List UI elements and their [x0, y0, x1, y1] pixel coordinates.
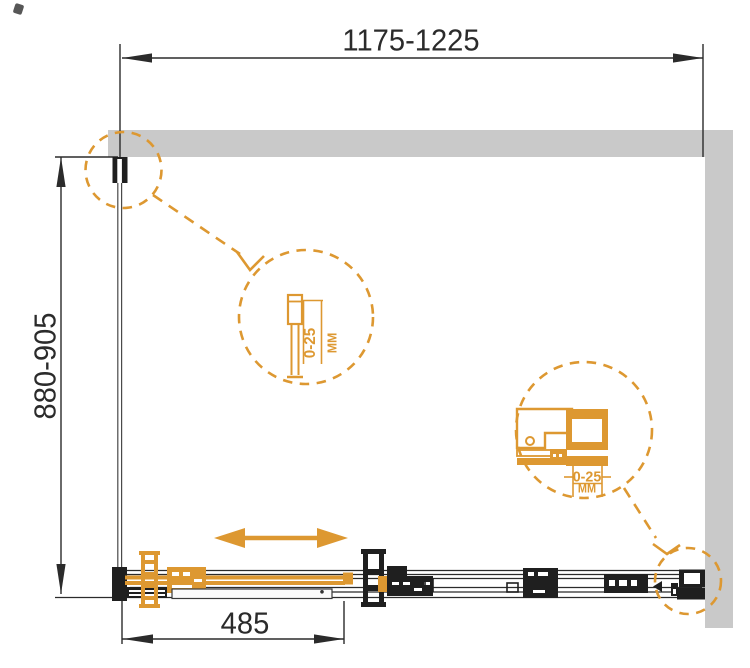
arrowhead-right: [673, 53, 703, 62]
arrowhead-right: [317, 528, 348, 548]
sliding-glass-door: [172, 589, 332, 599]
callout-detail-wall-profile: [239, 250, 373, 384]
right-roller-carriage: [604, 574, 648, 593]
wall-right: [705, 130, 733, 628]
arrowhead-right: [314, 634, 344, 643]
arrowhead-up: [56, 157, 65, 187]
detail-wall-profile-unit-label: мм: [326, 333, 339, 354]
fixed-glass-panel: [113, 157, 128, 572]
callout-leader-lines: [153, 195, 680, 554]
dimensional-drawing: 1175-1225 880-905 485 0-25 мм 0-25 мм: [0, 0, 750, 668]
arrowhead-down: [56, 564, 65, 594]
arrowhead-left: [123, 634, 153, 643]
detail-wall-profile-adjustment-label: 0-25: [303, 328, 319, 358]
shower-enclosure-drawing: [0, 0, 750, 668]
bottom-track-assembly: [55, 549, 705, 608]
middle-roller-carriage: [523, 568, 558, 598]
detail-wall-bracket-unit-label: мм: [578, 484, 596, 496]
walls: [108, 130, 733, 628]
wall-top: [108, 130, 733, 157]
height-dimension-label: 880-905: [30, 313, 61, 420]
width-dimension-label: 1175-1225: [342, 25, 479, 56]
detail-wall-bracket-adjustment-label: 0-25: [573, 470, 602, 485]
door-opening-dimension-label: 485: [221, 608, 270, 639]
slide-direction-arrow: [214, 528, 348, 548]
arrowhead-left: [122, 53, 152, 62]
door-handle-dot: [320, 590, 324, 594]
detail-callouts: [86, 132, 722, 614]
arrowhead-left: [214, 528, 245, 548]
height-dimension-line: [55, 157, 118, 594]
